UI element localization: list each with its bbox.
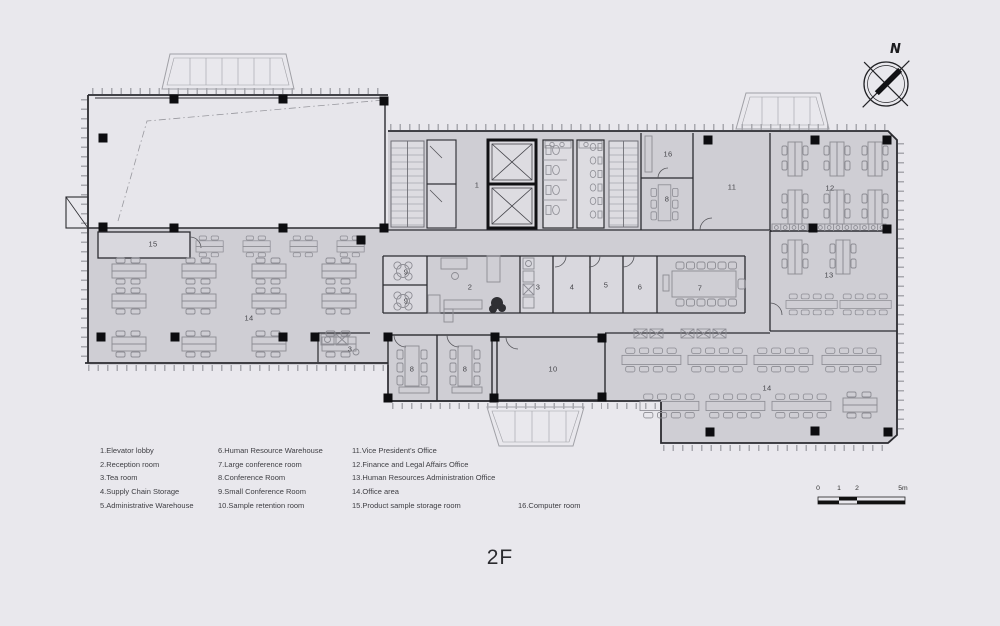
legend-column-1: 1.Elevator lobby 2.Reception room 3.Tea … <box>100 444 194 513</box>
room-label-1: 1 <box>475 181 479 190</box>
legend-item: 5.Administrative Warehouse <box>100 499 194 513</box>
legend-item: 1.Elevator lobby <box>100 444 194 458</box>
room-label-2: 2 <box>468 283 472 292</box>
floorplan-drawing <box>0 0 1000 626</box>
elevator-shafts <box>488 140 536 228</box>
room-label-6: 6 <box>638 283 642 292</box>
floor-title: 2F <box>455 546 545 570</box>
legend-item: 9.Small Conference Room <box>218 485 323 499</box>
legend-column-3: 11.Vice President's Office 12.Finance an… <box>352 444 495 513</box>
legend-item: 7.Large conference room <box>218 458 323 472</box>
north-label: N <box>890 42 901 57</box>
scale-tick-2: 2 <box>855 485 859 492</box>
canopy-top-right <box>736 93 829 129</box>
canopy-bottom <box>487 407 584 446</box>
legend-item: 14.Office area <box>352 485 495 499</box>
toilet-rooms <box>543 140 604 228</box>
room-label-3: 3 <box>536 283 540 292</box>
room-label-4: 4 <box>570 283 574 292</box>
room-label-14: 14 <box>245 314 254 323</box>
legend-item: 8.Conference Room <box>218 471 323 485</box>
stair-core-left <box>391 141 424 227</box>
room-label-7: 7 <box>698 284 702 293</box>
scale-tick-5m: 5m <box>898 485 907 492</box>
room-label-9b: 9 <box>404 297 408 306</box>
legend-item: 11.Vice President's Office <box>352 444 495 458</box>
legend-item: 4.Supply Chain Storage <box>100 485 194 499</box>
stair-core-right <box>609 141 638 227</box>
legend-column-2: 6.Human Resource Warehouse 7.Large confe… <box>218 444 323 513</box>
room-label-13: 13 <box>825 271 834 280</box>
legend-item: 13.Human Resources Administration Office <box>352 471 495 485</box>
room-label-12: 12 <box>826 184 835 193</box>
room-label-8c: 8 <box>463 365 467 374</box>
legend-column-4: 16.Computer room <box>518 499 581 513</box>
room-label-5: 5 <box>604 281 608 290</box>
scale-tick-0: 0 <box>816 485 820 492</box>
room-label-8: 8 <box>665 195 669 204</box>
legend-item: 10.Sample retention room <box>218 499 323 513</box>
canopy-top-left <box>162 54 294 89</box>
room-label-14b: 14 <box>763 384 772 393</box>
floorplan-page: 1 2 3 3 4 5 6 7 8 8 8 9 9 10 11 12 13 14… <box>0 0 1000 626</box>
room-label-3b: 3 <box>348 345 352 354</box>
scale-tick-1: 1 <box>837 485 841 492</box>
room-label-10: 10 <box>549 365 558 374</box>
room-label-16: 16 <box>664 150 673 159</box>
legend-item: 15.Product sample storage room <box>352 499 495 513</box>
legend-item: 16.Computer room <box>518 499 581 513</box>
room-label-9: 9 <box>404 268 408 277</box>
room-label-11: 11 <box>728 183 736 192</box>
compass-icon <box>863 61 910 108</box>
legend-item: 3.Tea room <box>100 471 194 485</box>
legend-item: 12.Finance and Legal Affairs Office <box>352 458 495 472</box>
room-label-8b: 8 <box>410 365 414 374</box>
room-label-15: 15 <box>149 240 158 249</box>
legend-item: 6.Human Resource Warehouse <box>218 444 323 458</box>
scale-bar <box>818 497 905 504</box>
legend-item: 2.Reception room <box>100 458 194 472</box>
